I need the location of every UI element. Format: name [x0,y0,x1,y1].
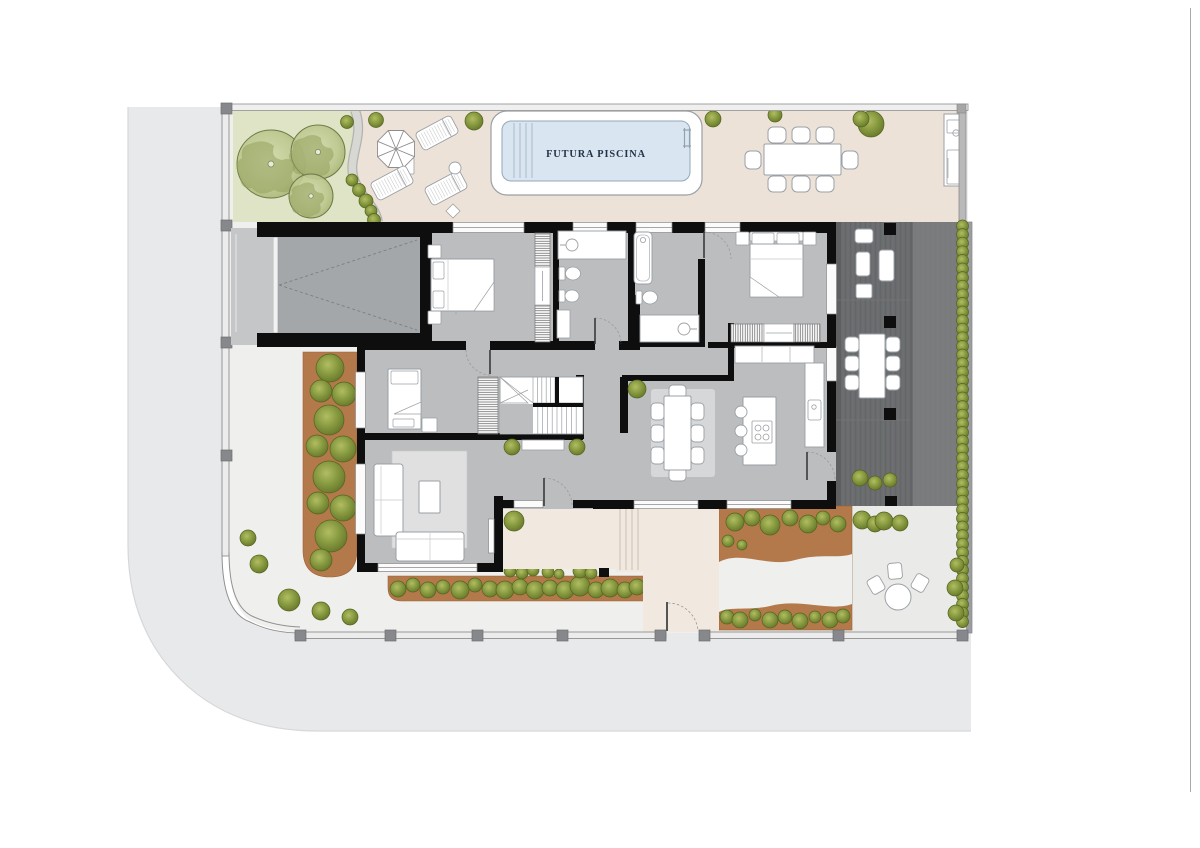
svg-text:FUTURA PISCINA: FUTURA PISCINA [546,149,646,160]
